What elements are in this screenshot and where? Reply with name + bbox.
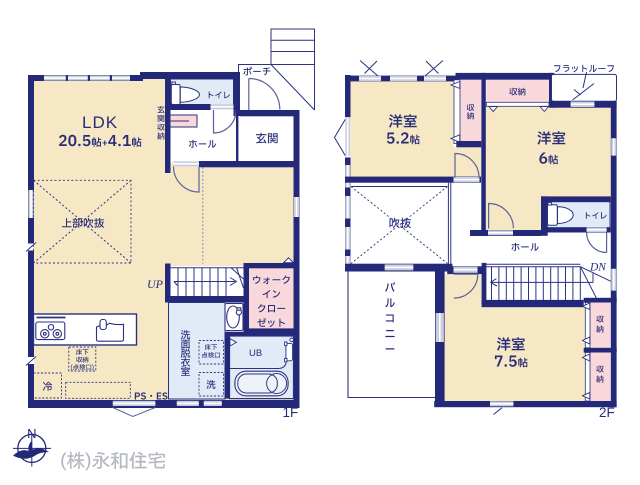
svg-text:2F: 2F <box>599 405 615 420</box>
svg-text:UP: UP <box>147 277 164 291</box>
svg-text:UB: UB <box>249 348 262 359</box>
svg-text:DN: DN <box>589 262 607 274</box>
svg-text:LDK: LDK <box>82 113 118 132</box>
svg-text:1F: 1F <box>283 405 299 420</box>
svg-text:N: N <box>27 426 36 441</box>
